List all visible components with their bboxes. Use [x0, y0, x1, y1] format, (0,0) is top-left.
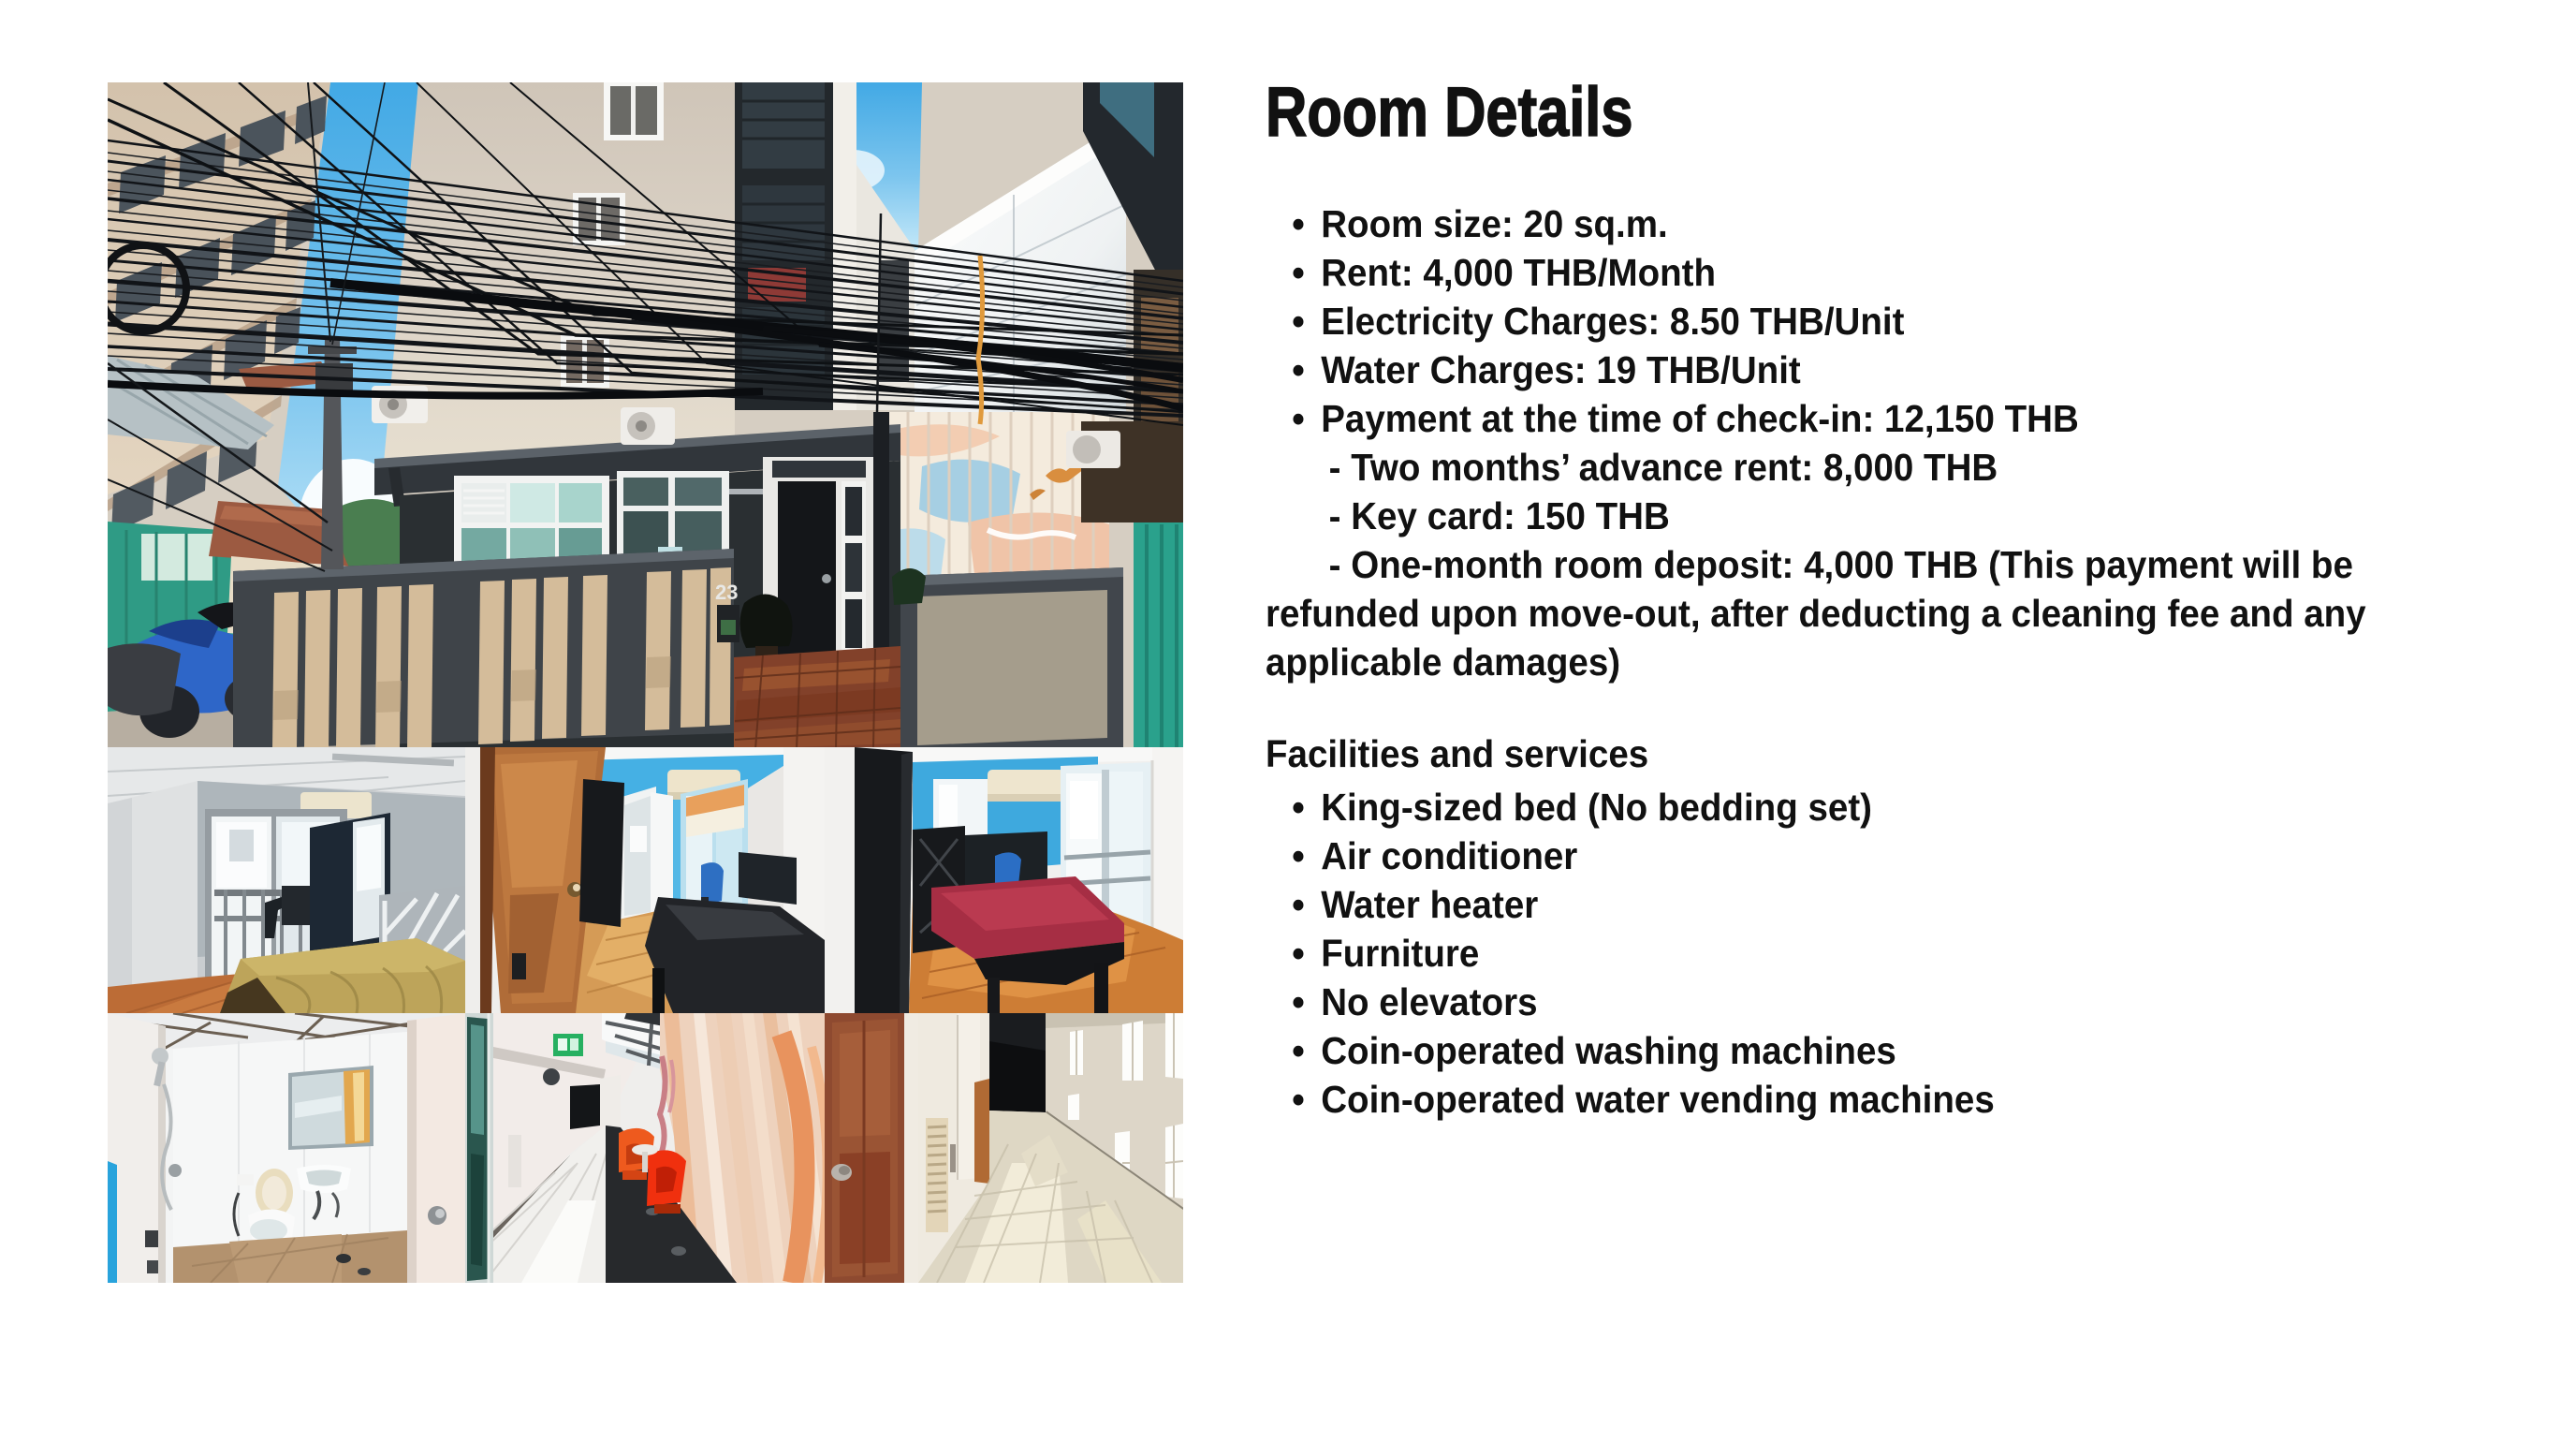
- svg-text:23: 23: [715, 581, 738, 604]
